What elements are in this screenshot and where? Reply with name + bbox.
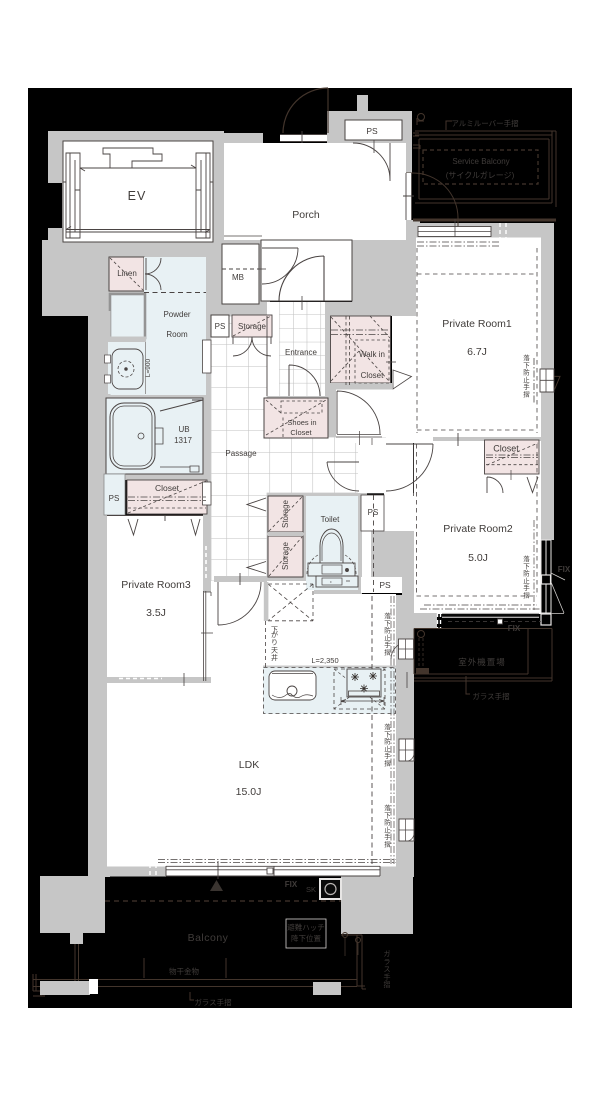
svg-text:落下防止手摺: 落下防止手摺 — [384, 803, 391, 849]
svg-text:Private Room3: Private Room3 — [121, 579, 191, 591]
svg-text:室外機置場: 室外機置場 — [458, 657, 506, 667]
svg-text:6.7J: 6.7J — [467, 346, 487, 358]
svg-text:Closet: Closet — [155, 483, 180, 493]
svg-text:15.0J: 15.0J — [236, 786, 262, 798]
svg-text:L=2,350: L=2,350 — [311, 656, 338, 665]
svg-text:PS: PS — [368, 508, 379, 517]
svg-text:ガラス手摺: ガラス手摺 — [194, 997, 231, 1007]
svg-text:FIX: FIX — [558, 565, 571, 574]
svg-text:1317: 1317 — [174, 436, 192, 445]
svg-text:5.0J: 5.0J — [468, 552, 488, 564]
svg-text:Entrance: Entrance — [285, 348, 318, 357]
svg-text:Room: Room — [166, 330, 188, 339]
svg-text:FIX: FIX — [508, 624, 521, 633]
svg-text:落下防止手摺: 落下防止手摺 — [523, 554, 530, 600]
svg-text:Closet: Closet — [361, 371, 384, 380]
svg-text:Storage: Storage — [238, 322, 267, 331]
svg-text:物干金物: 物干金物 — [169, 966, 199, 976]
svg-text:Storage: Storage — [281, 541, 290, 570]
svg-text:ガラス手摺: ガラス手摺 — [384, 949, 391, 989]
svg-text:Toilet: Toilet — [321, 515, 340, 524]
svg-text:Porch: Porch — [292, 209, 320, 221]
svg-text:落下防止手摺: 落下防止手摺 — [384, 611, 391, 657]
svg-text:Storage: Storage — [281, 499, 290, 528]
svg-text:避難ハッチ: 避難ハッチ — [287, 922, 325, 932]
svg-text:FIX: FIX — [285, 880, 298, 889]
svg-text:Closet: Closet — [290, 428, 312, 437]
svg-text:UB: UB — [178, 425, 189, 434]
svg-text:Passage: Passage — [225, 449, 257, 458]
svg-text:Powder: Powder — [163, 310, 190, 319]
svg-text:下がり天井: 下がり天井 — [271, 626, 278, 662]
svg-text:Balcony: Balcony — [188, 932, 229, 944]
svg-text:落下防止手摺: 落下防止手摺 — [523, 353, 530, 399]
svg-text:落下防止手摺: 落下防止手摺 — [384, 722, 391, 768]
svg-text:3.5J: 3.5J — [146, 607, 166, 619]
svg-text:EV: EV — [128, 189, 147, 203]
svg-text:SK: SK — [306, 885, 316, 894]
svg-text:PS: PS — [109, 494, 120, 503]
svg-text:PS: PS — [215, 322, 226, 331]
svg-text:MB: MB — [232, 273, 244, 282]
svg-text:PS: PS — [366, 126, 378, 136]
svg-text:アルミルーバー手摺: アルミルーバー手摺 — [451, 118, 518, 128]
svg-text:Private Room1: Private Room1 — [442, 318, 512, 330]
svg-text:Linen: Linen — [117, 269, 137, 278]
svg-text:L=900: L=900 — [145, 358, 152, 377]
svg-text:Private Room2: Private Room2 — [443, 523, 513, 535]
svg-text:(サイクルガレージ): (サイクルガレージ) — [446, 170, 515, 180]
svg-text:Closet: Closet — [493, 444, 519, 454]
svg-text:Shoes in: Shoes in — [287, 418, 316, 427]
svg-text:ガラス手摺: ガラス手摺 — [472, 691, 509, 701]
svg-text:Service Balcony: Service Balcony — [452, 157, 509, 166]
svg-text:LDK: LDK — [239, 759, 259, 771]
svg-text:降下位置: 降下位置 — [291, 933, 321, 943]
svg-text:Walk in: Walk in — [359, 350, 385, 359]
svg-text:PS: PS — [379, 580, 391, 590]
